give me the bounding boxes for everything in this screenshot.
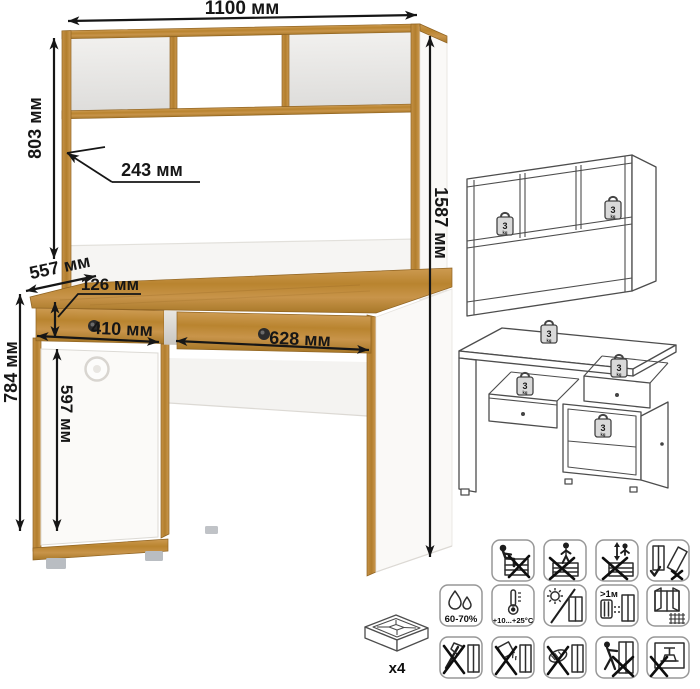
hutch-left-compartment xyxy=(71,37,170,111)
humidity-label: 60-70% xyxy=(445,614,478,625)
dim-desk-height: 784 мм xyxy=(1,294,21,531)
svg-text:kg: kg xyxy=(523,390,528,395)
icon-no-spilling-liquids xyxy=(492,637,534,678)
icon-humidity-range: 60-70% xyxy=(440,585,482,626)
hutch-side-panel xyxy=(420,27,447,300)
svg-text:kg: kg xyxy=(611,214,616,219)
svg-text:kg: kg xyxy=(617,372,622,377)
heater-distance-label: >1м xyxy=(600,589,618,600)
diagram-svg: 1100 мм 803 мм 243 мм 1587 мм 557 мм 126… xyxy=(0,0,700,689)
dim-right-drawer-width-label: 628 мм xyxy=(269,328,331,351)
icon-no-sharp-tools xyxy=(440,637,482,678)
desk-side-front-edge xyxy=(367,315,376,576)
care-icon-grid: 60-70% +10...+25°C >1м xyxy=(440,540,689,678)
partition-foot xyxy=(205,526,218,534)
hutch-right-compartment xyxy=(289,32,411,106)
icon-no-jumping xyxy=(596,540,638,581)
icon-no-standing xyxy=(544,540,586,581)
cabinet-foot-right xyxy=(145,551,163,561)
dim-hutch-height-label: 803 мм xyxy=(25,97,45,159)
foot-count-label: x4 xyxy=(389,660,406,677)
hutch-divider-right xyxy=(282,34,289,106)
desk-knee-back-panel xyxy=(169,358,367,416)
icon-no-abrasive-cleaning xyxy=(544,637,586,678)
hutch-load-diagram: 3 kg 3 kg xyxy=(467,155,656,316)
foot-glide-icon: x4 xyxy=(365,615,428,677)
desk-side-panel xyxy=(376,289,452,572)
hutch-right-upright xyxy=(411,24,420,289)
dim-shelf-depth-label: 243 мм xyxy=(121,160,183,180)
dim-top-width: 1100 мм xyxy=(68,0,417,21)
icon-do-not-overload xyxy=(647,637,689,678)
icon-keep-upright xyxy=(647,540,689,581)
svg-text:kg: kg xyxy=(601,432,606,437)
cabinet-left-stile xyxy=(33,338,41,551)
dim-shelf-depth: 243 мм xyxy=(67,147,200,182)
icon-temperature-range: +10...+25°C xyxy=(492,585,534,626)
dim-door-height-label: 597 мм xyxy=(57,385,76,443)
right-drawer-knob xyxy=(258,328,270,340)
dim-total-height-label: 1587 мм xyxy=(431,187,451,259)
drawer-gap xyxy=(164,311,177,345)
desk-load-diagram: 3 kg 3 kg 3 kg 3 kg xyxy=(459,321,676,495)
icon-no-direct-sunlight xyxy=(544,585,586,626)
furniture-dimension-diagram: 1100 мм 803 мм 243 мм 1587 мм 557 мм 126… xyxy=(0,0,700,689)
load-weight-icon: 3 kg xyxy=(541,321,557,343)
load-weight-icon: 3 kg xyxy=(517,373,533,395)
dim-desk-height-label: 784 мм xyxy=(1,341,21,403)
icon-heater-distance: >1м xyxy=(596,585,638,626)
svg-text:kg: kg xyxy=(547,338,552,343)
icon-no-sitting xyxy=(492,540,534,581)
cabinet-foot-left xyxy=(46,558,66,569)
cabinet-partition xyxy=(161,344,169,538)
svg-text:kg: kg xyxy=(503,230,508,235)
dim-top-width-label: 1100 мм xyxy=(205,0,280,19)
hutch-front xyxy=(62,24,420,296)
dim-left-drawer-width-label: 410 мм xyxy=(91,318,153,340)
dim-drawer-height-label: 126 мм xyxy=(81,275,139,294)
temperature-label: +10...+25°C xyxy=(493,616,534,625)
icon-ventilate-room xyxy=(647,585,689,626)
dim-hutch-height: 803 мм xyxy=(25,38,54,259)
hutch-divider-left xyxy=(170,37,177,109)
icon-do-not-drag xyxy=(596,637,638,678)
door-handle-center xyxy=(93,365,101,373)
